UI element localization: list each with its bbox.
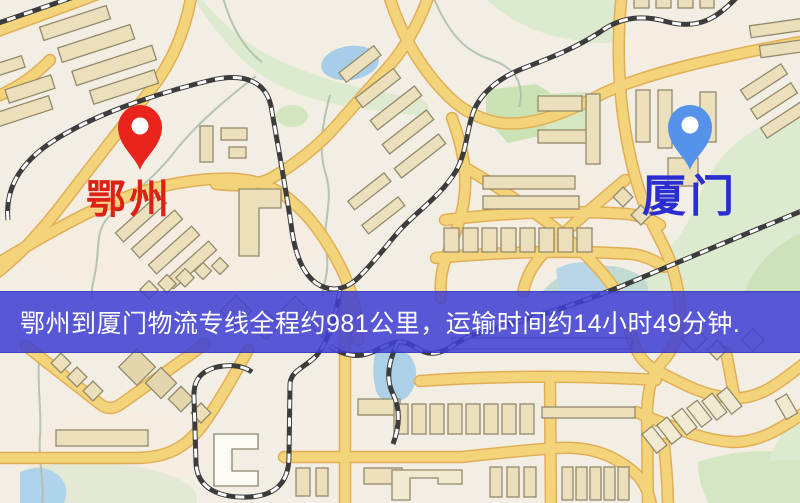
destination-pin-body: [668, 105, 712, 170]
origin-pin-icon[interactable]: [105, 94, 175, 174]
origin-pin-hole: [132, 118, 149, 135]
destination-pin-hole: [682, 117, 699, 134]
basemap[interactable]: [0, 0, 800, 503]
origin-pin-body: [118, 105, 162, 170]
map-screenshot: 鄂州 厦门 鄂州到厦门物流专线全程约981公里，运输时间约14小时49分钟.: [0, 0, 800, 503]
route-info-banner: 鄂州到厦门物流专线全程约981公里，运输时间约14小时49分钟.: [0, 291, 800, 353]
origin-city-label: 鄂州: [86, 180, 172, 220]
destination-pin-icon[interactable]: [655, 94, 725, 174]
destination-city-label: 厦门: [642, 175, 738, 219]
route-info-text: 鄂州到厦门物流专线全程约981公里，运输时间约14小时49分钟.: [0, 304, 740, 340]
